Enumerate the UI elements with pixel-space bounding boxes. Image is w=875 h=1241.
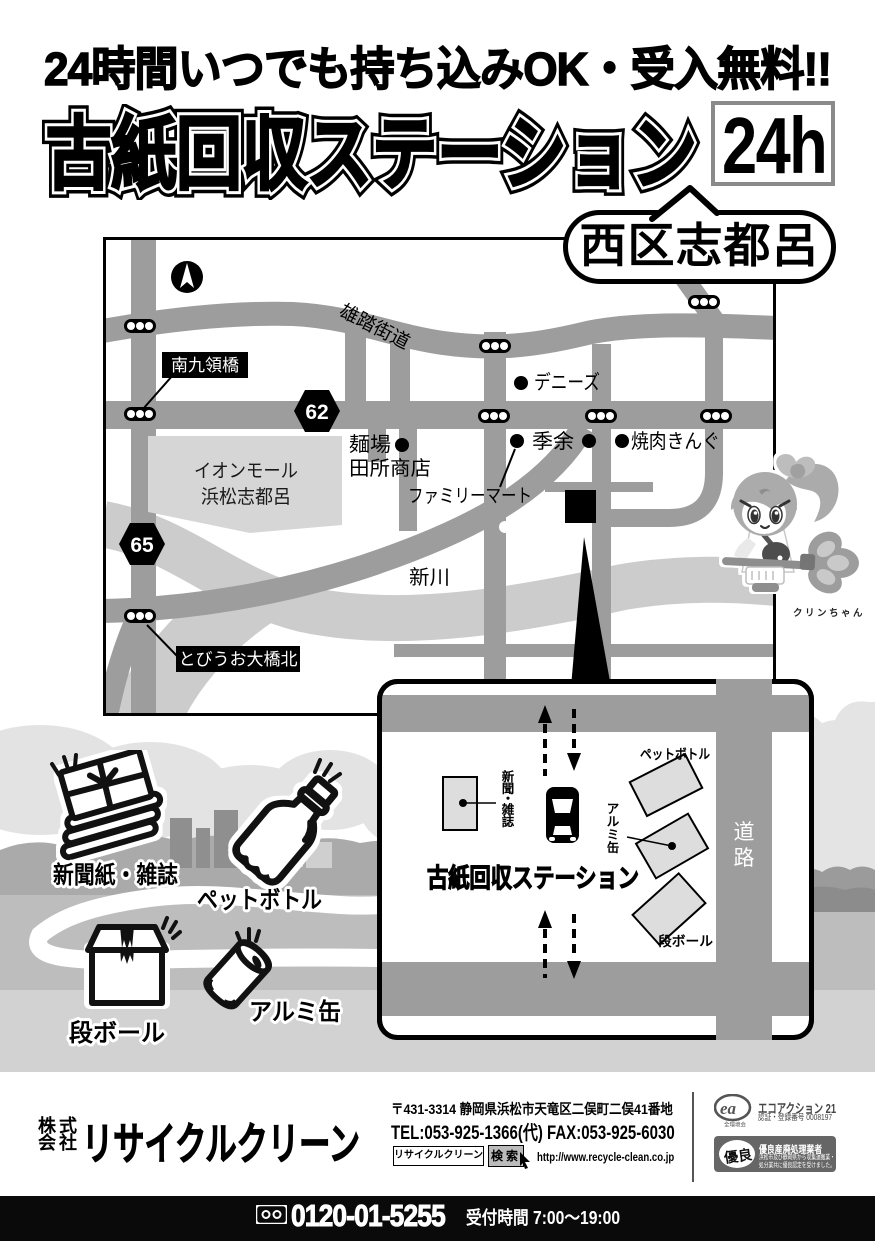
svg-text:65: 65	[130, 534, 154, 557]
svg-text:段ボール: 段ボール	[658, 933, 714, 949]
svg-text:ファミリーマート: ファミリーマート	[408, 486, 532, 507]
svg-text:季余: 季余	[532, 430, 574, 453]
svg-text:段ボール: 段ボール	[69, 1019, 165, 1047]
svg-text:麺場: 麺場	[349, 433, 391, 456]
svg-text:南九領橋: 南九領橋	[171, 356, 239, 375]
svg-text:浜松志都呂: 浜松志都呂	[201, 486, 291, 508]
svg-text:焼肉きんぐ: 焼肉きんぐ	[631, 430, 720, 453]
svg-text:ペットボトル: ペットボトル	[640, 747, 710, 762]
svg-text:路: 路	[734, 847, 755, 870]
svg-text:クリンちゃん: クリンちゃん	[793, 608, 865, 619]
svg-text:アルミ缶: アルミ缶	[607, 802, 620, 855]
svg-text:イオンモール: イオンモール	[194, 461, 298, 482]
svg-text:古紙回収ステーション: 古紙回収ステーション	[427, 863, 639, 893]
svg-text:道: 道	[734, 821, 755, 844]
svg-text:デニーズ: デニーズ	[534, 371, 600, 394]
svg-text:ペットボトル: ペットボトル	[197, 887, 322, 914]
svg-text:新聞・雑誌: 新聞・雑誌	[501, 770, 515, 829]
svg-text:全環境会: 全環境会	[724, 1121, 747, 1129]
svg-text:62: 62	[305, 401, 328, 424]
svg-text:とびうお大橋北: とびうお大橋北	[179, 650, 298, 669]
svg-text:田所商店: 田所商店	[349, 457, 431, 480]
svg-text:新聞紙・雑誌: 新聞紙・雑誌	[53, 861, 178, 889]
svg-text:ea: ea	[720, 1099, 737, 1118]
svg-text:新川: 新川	[409, 566, 450, 589]
svg-text:アルミ缶: アルミ缶	[249, 998, 341, 1026]
